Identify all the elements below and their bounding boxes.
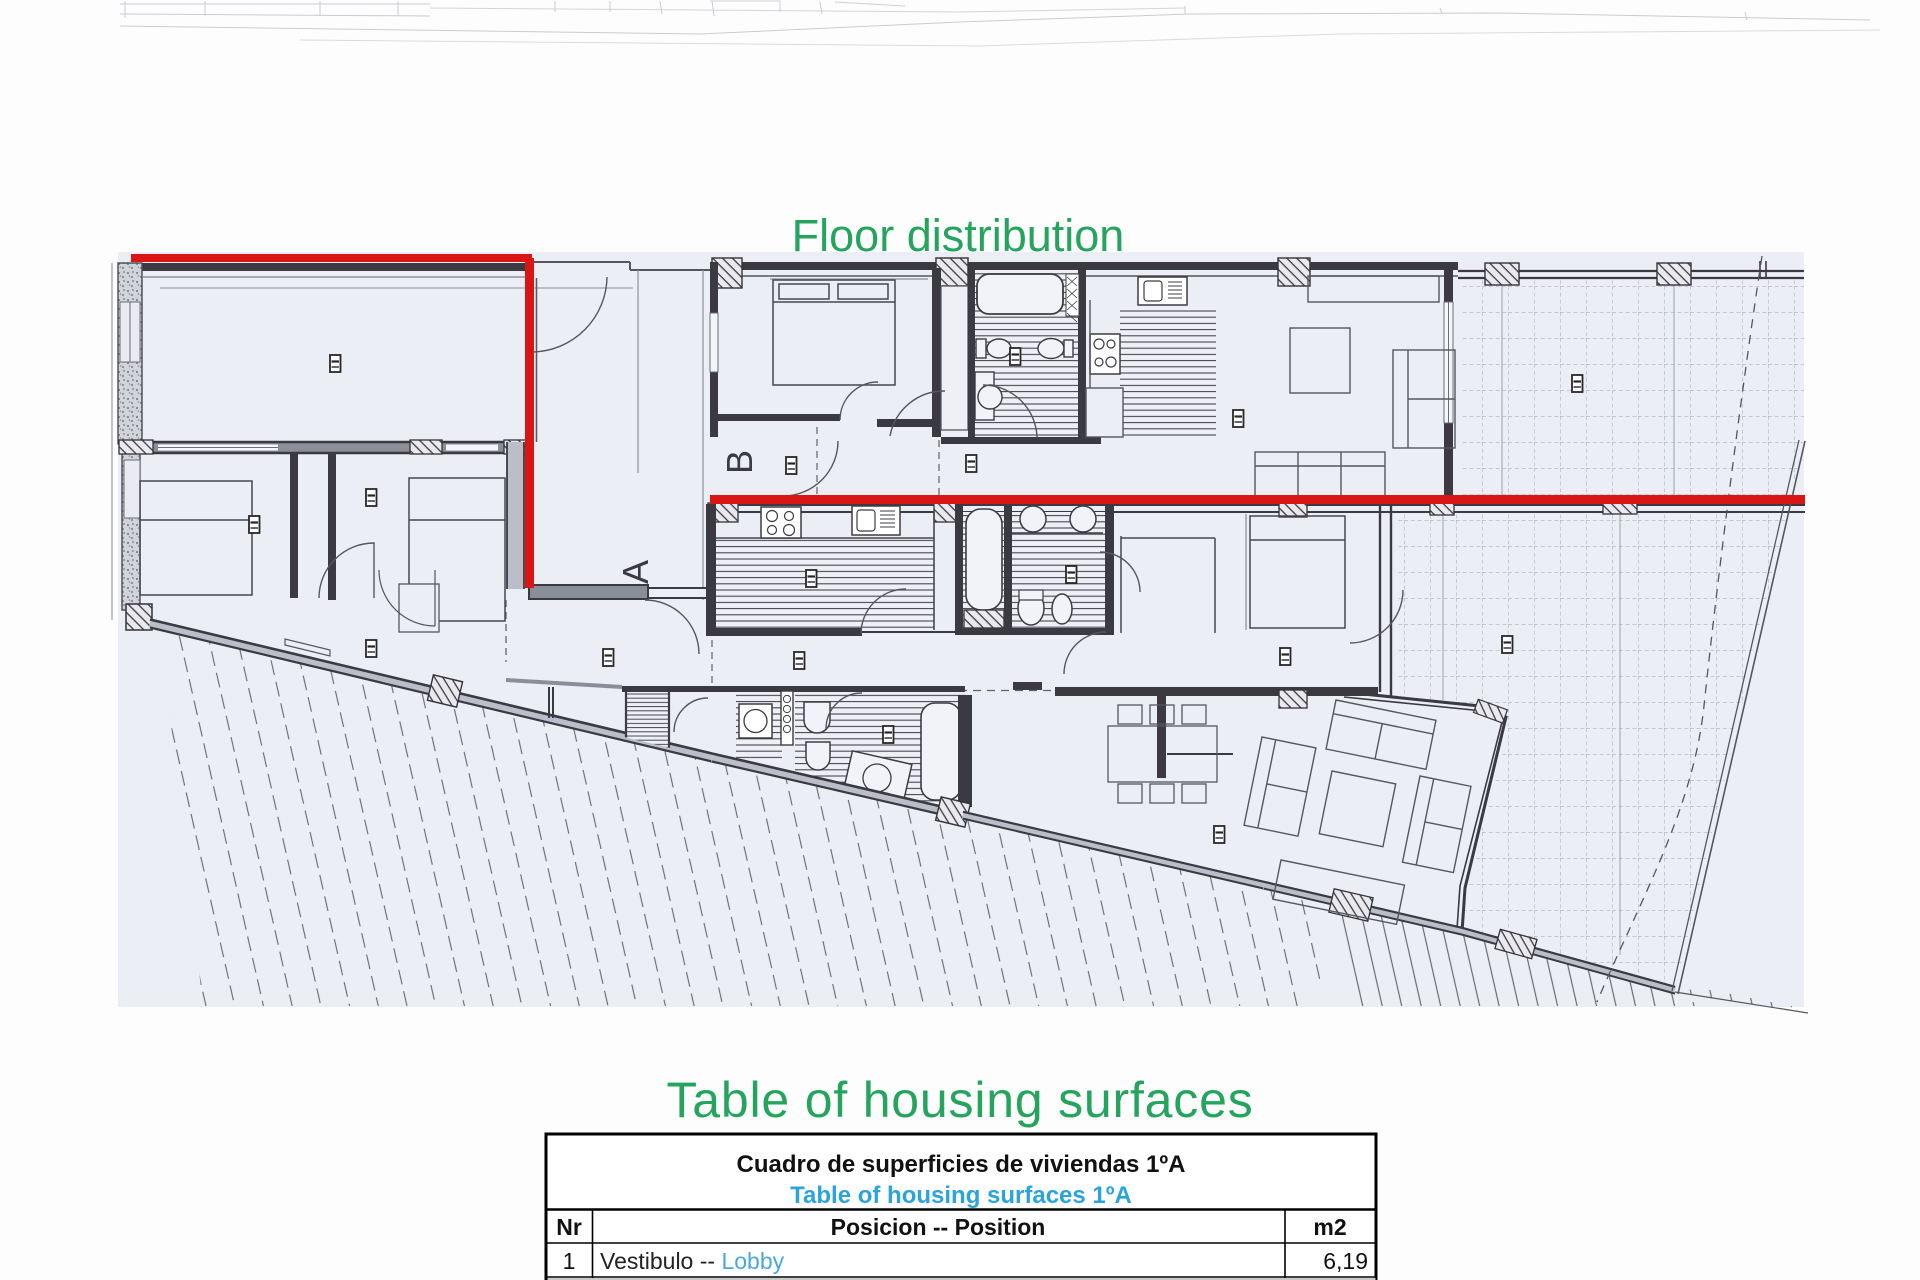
svg-text:m2: m2 <box>1313 1214 1346 1240</box>
svg-text:B: B <box>719 450 760 474</box>
svg-text:Floor distribution: Floor distribution <box>792 210 1125 261</box>
svg-text:Vestibulo -- Lobby: Vestibulo -- Lobby <box>600 1248 785 1274</box>
svg-text:1: 1 <box>563 1248 576 1274</box>
svg-text:Table of housing surfaces: Table of housing surfaces <box>666 1072 1253 1128</box>
svg-text:6,19: 6,19 <box>1323 1248 1368 1274</box>
svg-text:Nr: Nr <box>556 1214 582 1240</box>
svg-text:Table of housing surfaces 1ºA: Table of housing surfaces 1ºA <box>790 1182 1132 1209</box>
svg-text:Posicion -- Position: Posicion -- Position <box>831 1214 1046 1240</box>
svg-text:Cuadro de superficies de vivie: Cuadro de superficies de viviendas 1ºA <box>737 1151 1186 1178</box>
svg-text:A: A <box>615 560 656 584</box>
